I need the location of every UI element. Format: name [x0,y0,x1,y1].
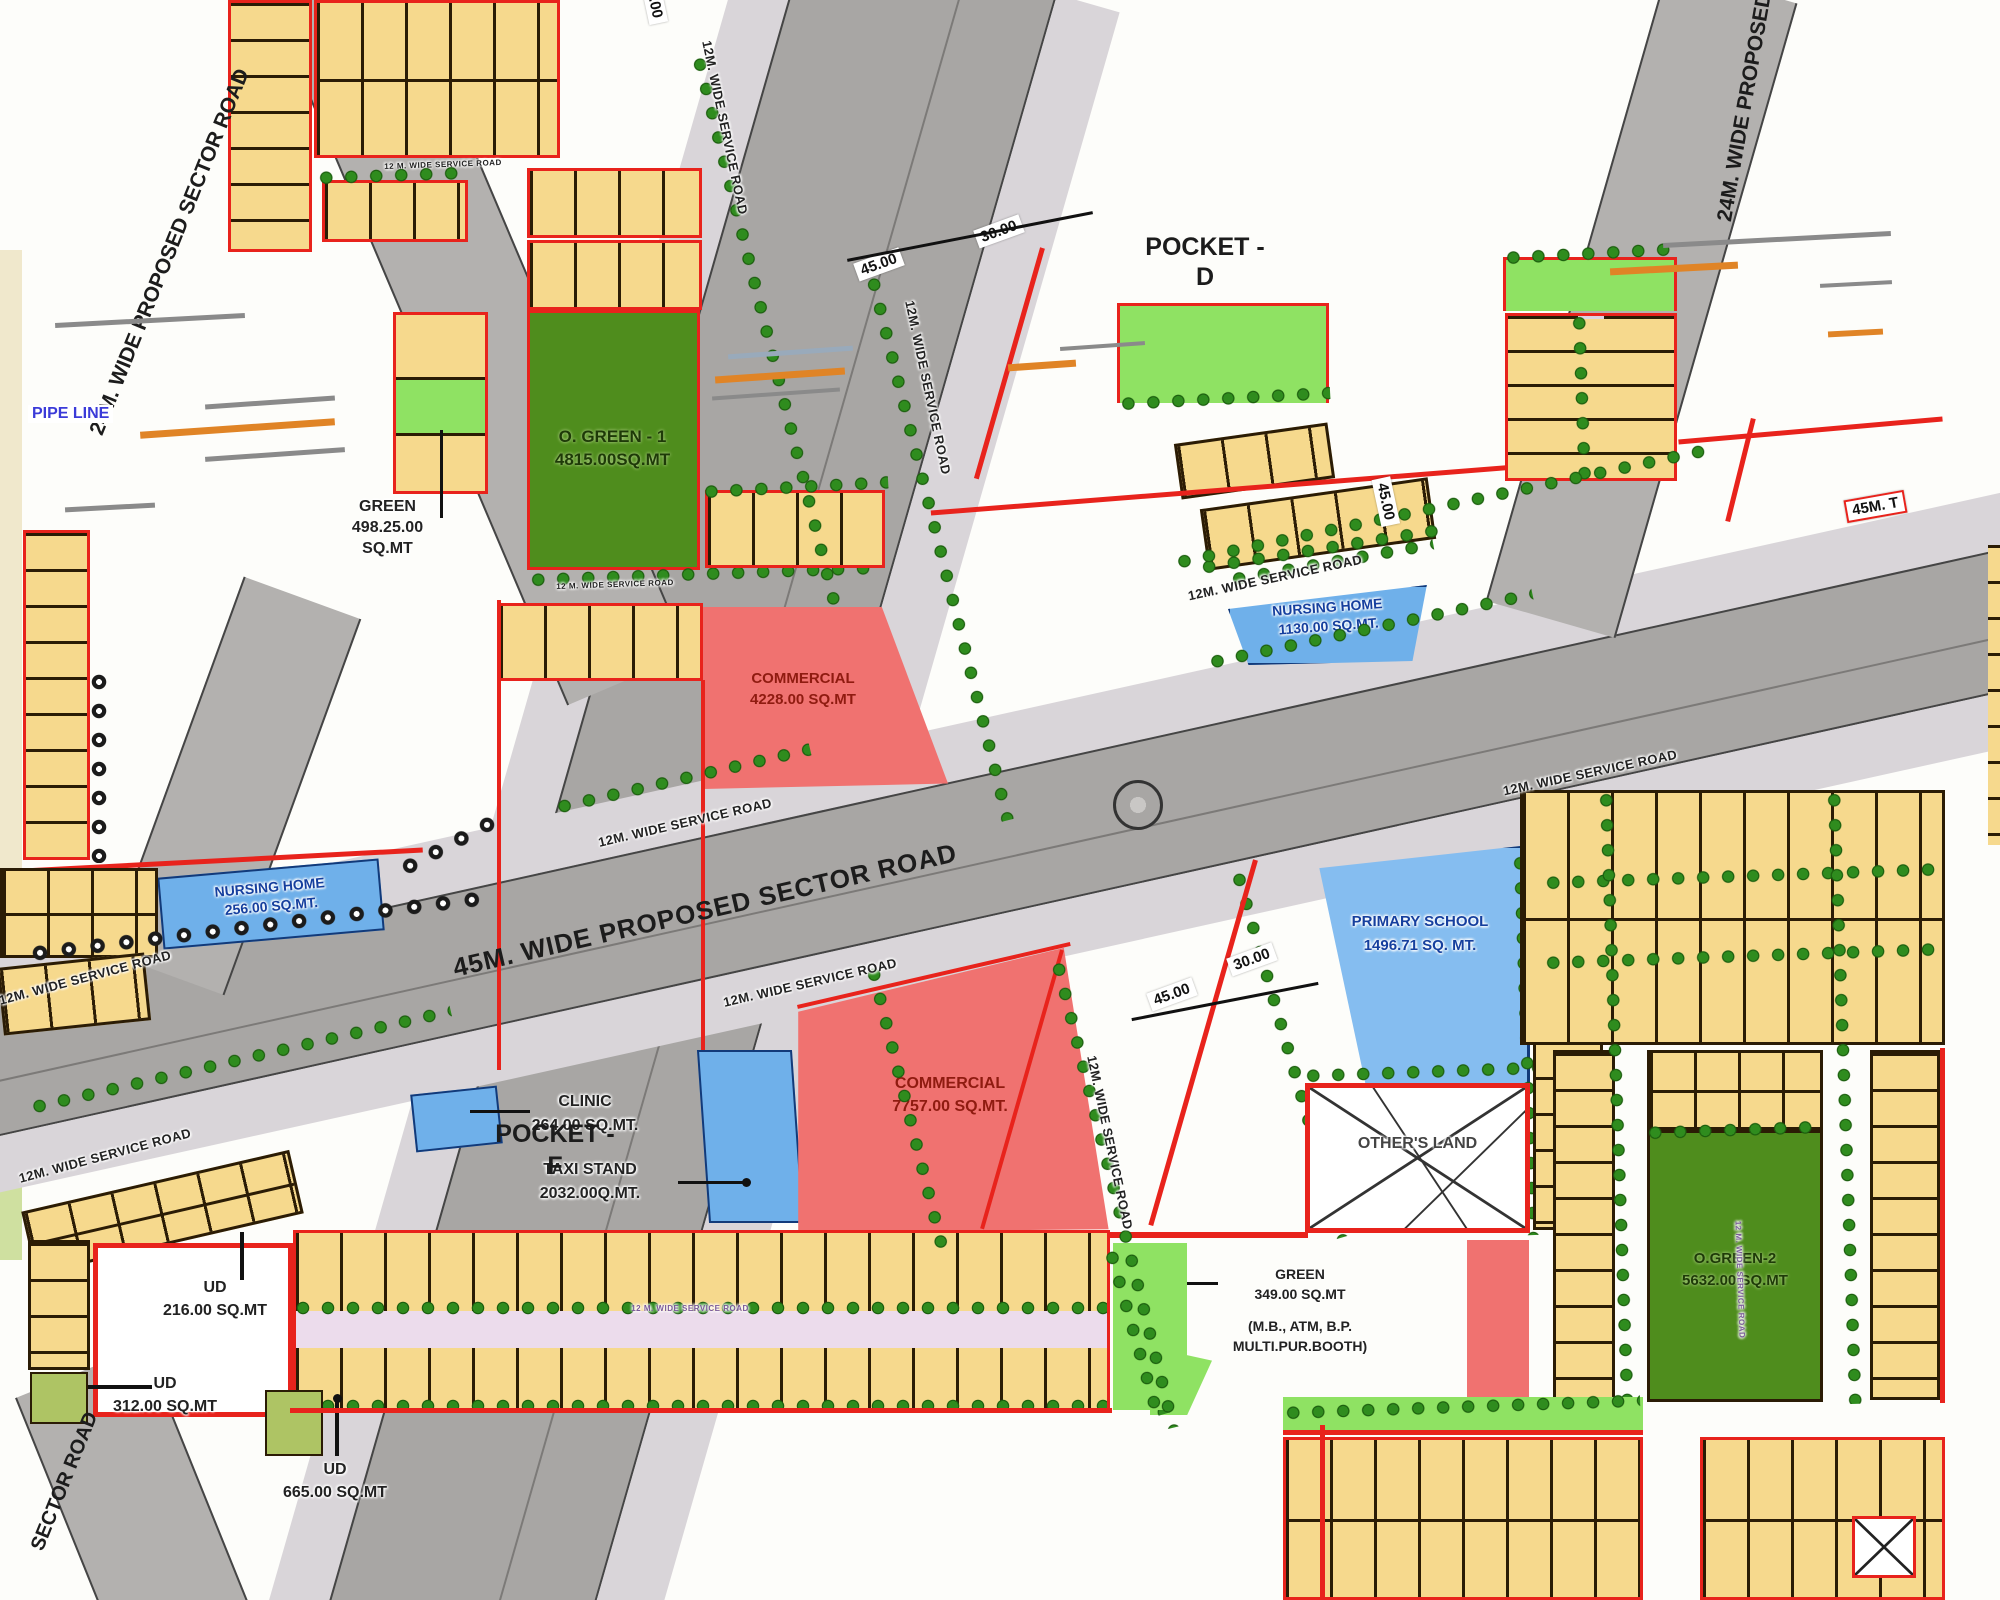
green-349-label: GREEN349.00 SQ.MT (M.B., ATM, B.P.MULTI.… [1195,1264,1405,1356]
plot-block [1870,1050,1940,1400]
ud-216-label: UD216.00 SQ.MT [140,1276,290,1322]
plot-block [1647,1050,1823,1130]
pipe-dash [205,447,345,462]
ud-olive-patch [265,1390,323,1456]
plot-block [1553,1050,1615,1400]
dim-45-top: 45.00 [640,0,668,25]
service-road-label: 12 M. WIDE SERVICE ROAD [610,1304,770,1313]
sector-plan-map: 12 M. WIDE SERVICE ROAD GREEN498.25.00SQ… [0,0,2000,1600]
pocket-boundary [1283,1430,1643,1435]
pipe-dash [205,395,335,409]
plot-block [314,0,560,158]
leader-line [240,1232,244,1280]
plot-block [705,490,885,568]
green-498-patch [396,380,485,433]
crossed-plot [1852,1516,1916,1578]
others-land-label: OTHER'S LAND [1325,1135,1510,1153]
ud-665-label: UD665.00 SQ.MT [250,1458,420,1504]
commercial-4228-label: COMMERCIAL4228.00 SQ.MT [718,668,888,710]
pocket-green-topright [1503,257,1677,311]
others-land-zone [1305,1083,1530,1233]
plot-block [28,1240,90,1370]
red-strip-zone [1467,1240,1529,1420]
ud-312-label: UD312.00 SQ.MT [90,1372,240,1418]
plot-block [1520,790,1945,1045]
pocket-boundary [701,680,705,1052]
pipe-dash [1820,280,1892,288]
leader-line [678,1181,746,1184]
pocket-boundary [1108,1232,1308,1238]
pocket-d-label: POCKET -D [1130,232,1280,292]
plot-block [527,168,702,238]
taxi-stand-zone [697,1050,804,1223]
leader-dot [742,1178,751,1187]
plot-block [23,530,90,860]
plot-block [527,240,702,310]
pocket-boundary [497,600,501,1070]
plot-block [497,603,703,681]
pipe-dash [65,503,155,513]
pipe-line-label: PIPE LINE [28,405,113,423]
plot-block [228,0,312,252]
roundabout [1113,780,1163,830]
plot-block [1283,1437,1643,1600]
pipe-dash [140,418,335,439]
ring-marker-line [90,673,108,863]
primary-school-label: PRIMARY SCHOOL1496.71 SQ. MT. [1330,910,1510,958]
pocket-boundary [1940,1048,1945,1403]
green-498-label: GREEN498.25.00SQ.MT [330,496,445,559]
pocket-boundary [1320,1425,1325,1600]
pocket-boundary [290,1408,1112,1413]
pocket-boundary [1678,416,1942,444]
pipe-dash [1828,329,1883,338]
plot-block [322,180,468,242]
o-green-1-label: O. GREEN - 14815.00SQ.MT [510,425,715,471]
plot-block [1988,545,2000,845]
pocket-f-rows [293,1230,1110,1410]
pocket-f-label: POCKET -F [480,1118,630,1182]
